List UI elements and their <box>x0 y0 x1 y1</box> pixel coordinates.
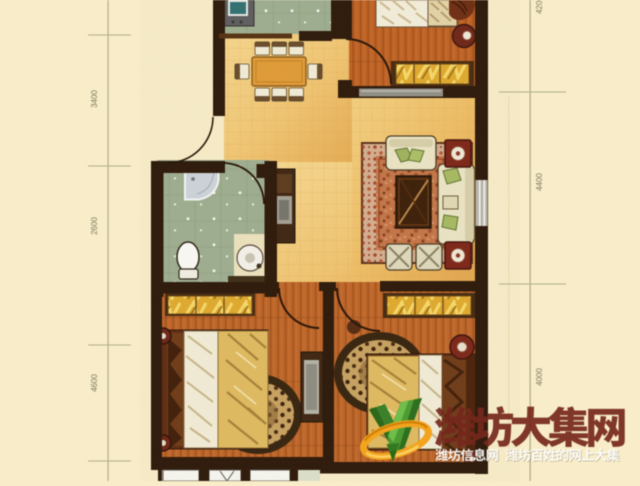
svg-text:4400: 4400 <box>535 173 544 191</box>
svg-text:4600: 4600 <box>90 374 99 392</box>
svg-text:2600: 2600 <box>90 217 99 235</box>
svg-text:4200: 4200 <box>535 0 544 14</box>
svg-text:4000: 4000 <box>535 368 544 386</box>
svg-text:3400: 3400 <box>90 90 99 108</box>
